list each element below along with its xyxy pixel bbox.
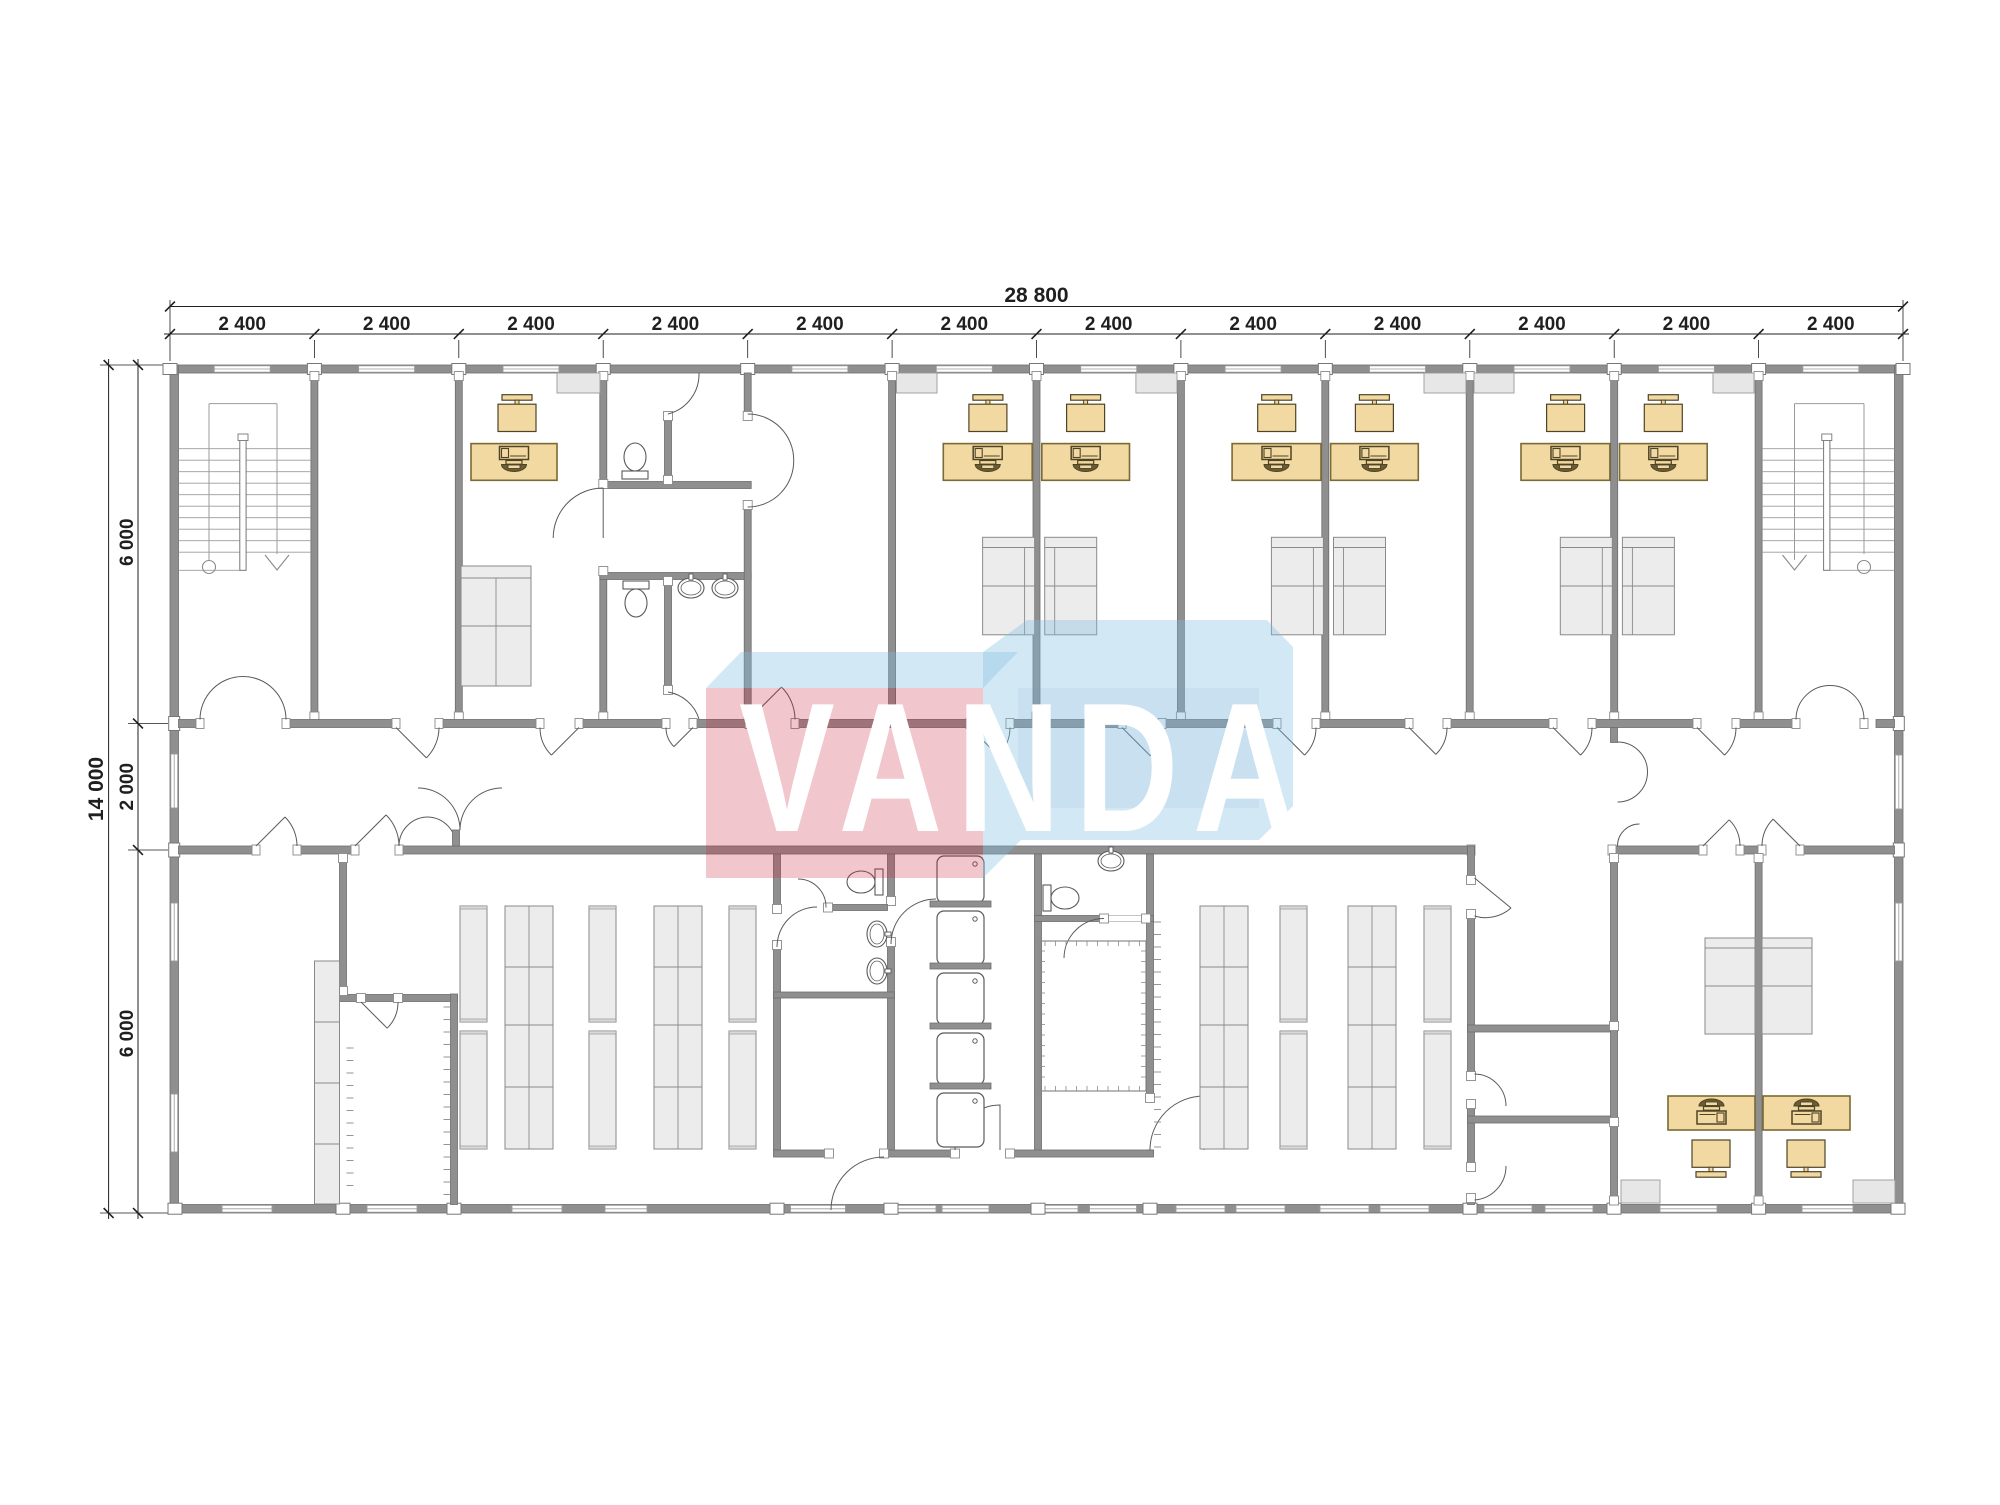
svg-text:2 400: 2 400 [363,314,411,335]
svg-text:6 000: 6 000 [117,518,138,566]
svg-text:28 800: 28 800 [1004,284,1068,307]
svg-text:2 400: 2 400 [507,314,555,335]
svg-text:6 000: 6 000 [117,1010,138,1058]
svg-text:2 400: 2 400 [1663,314,1711,335]
svg-text:14 000: 14 000 [85,757,108,821]
svg-text:2 400: 2 400 [796,314,844,335]
svg-text:2 400: 2 400 [1085,314,1133,335]
svg-text:2 400: 2 400 [652,314,700,335]
svg-text:2 400: 2 400 [941,314,989,335]
svg-text:2 400: 2 400 [1374,314,1422,335]
svg-text:VANDA: VANDA [739,665,1311,870]
svg-text:2 000: 2 000 [117,763,138,811]
svg-text:2 400: 2 400 [218,314,266,335]
svg-text:2 400: 2 400 [1229,314,1277,335]
svg-text:2 400: 2 400 [1807,314,1855,335]
svg-text:2 400: 2 400 [1518,314,1566,335]
